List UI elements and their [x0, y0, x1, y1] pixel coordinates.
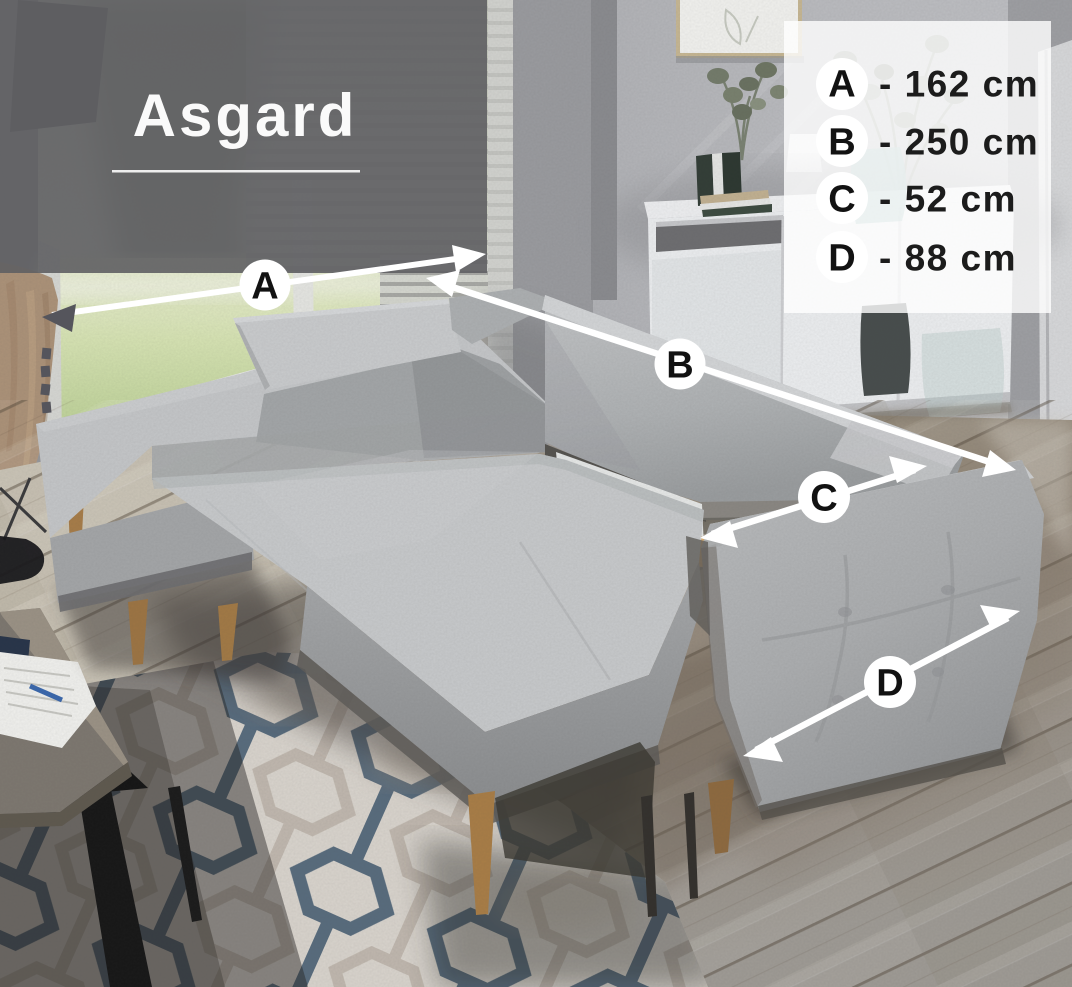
svg-text:- 52 cm: - 52 cm — [879, 179, 1017, 220]
svg-text:D: D — [828, 238, 855, 280]
svg-text:D: D — [876, 663, 903, 705]
svg-text:- 162 cm: - 162 cm — [879, 64, 1039, 105]
svg-text:- 250 cm: - 250 cm — [879, 122, 1039, 163]
svg-text:C: C — [810, 478, 837, 520]
svg-text:C: C — [828, 179, 855, 221]
svg-text:B: B — [828, 122, 855, 164]
svg-text:Asgard: Asgard — [133, 82, 358, 149]
svg-text:B: B — [666, 345, 693, 387]
svg-text:A: A — [251, 266, 278, 308]
svg-text:- 88 cm: - 88 cm — [879, 238, 1017, 279]
svg-text:A: A — [828, 64, 855, 106]
